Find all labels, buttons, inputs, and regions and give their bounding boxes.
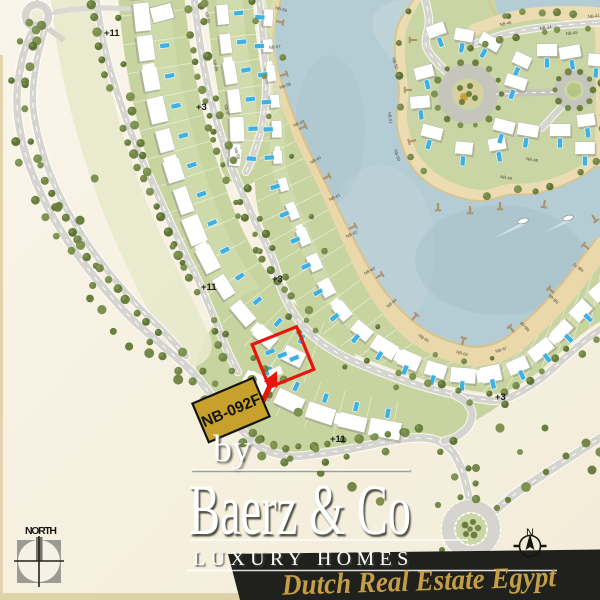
svg-text:+3: +3 (495, 392, 506, 403)
svg-text:+11: +11 (104, 28, 120, 39)
svg-text:+3: +3 (196, 102, 207, 113)
svg-text:NORTH: NORTH (25, 525, 57, 537)
svg-text:+11: +11 (330, 434, 346, 445)
svg-text:+11: +11 (201, 282, 217, 293)
svg-text:by: by (213, 428, 251, 470)
svg-text:NB-41: NB-41 (588, 13, 600, 19)
svg-text:Baerz & Co: Baerz & Co (189, 470, 411, 550)
svg-text:+3: +3 (272, 274, 283, 285)
